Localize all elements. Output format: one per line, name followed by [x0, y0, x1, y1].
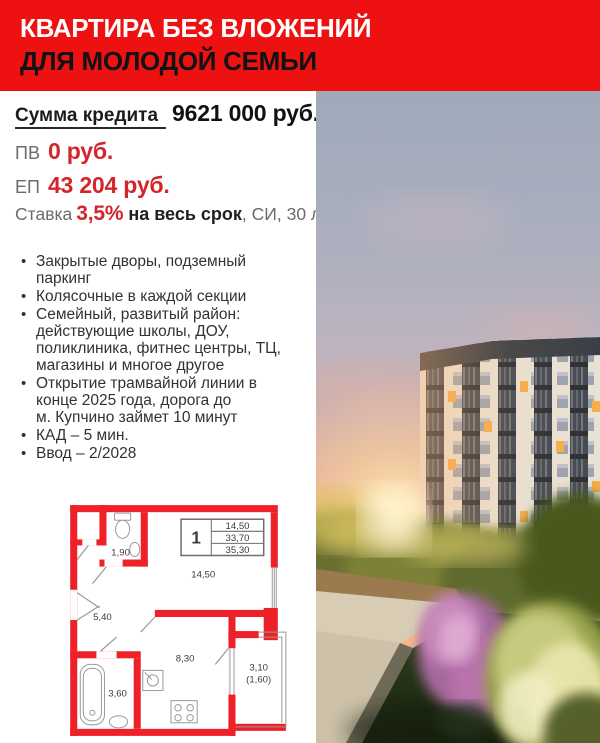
room-label-hall: 5,40	[93, 612, 112, 623]
flyer: КВАРТИРА БЕЗ ВЛОЖЕНИЙ ДЛЯ МОЛОДОЙ СЕМЬИ …	[0, 0, 600, 743]
banner-title-line2: ДЛЯ МОЛОДОЙ СЕМЬИ	[20, 45, 600, 78]
banner: КВАРТИРА БЕЗ ВЛОЖЕНИЙ ДЛЯ МОЛОДОЙ СЕМЬИ	[0, 0, 600, 91]
room-label-living: 14,50	[191, 570, 215, 581]
feature-item: Закрытые дворы, подземный паркинг	[36, 253, 330, 287]
downpayment-label: ПВ	[15, 143, 40, 163]
rate-term: на весь срок	[128, 204, 242, 224]
feature-list: Закрытые дворы, подземный паркинг Колясо…	[20, 253, 330, 463]
rate-value: 3,5%	[76, 202, 123, 225]
legend-rooms: 1	[191, 527, 201, 547]
banner-title-line1: КВАРТИРА БЕЗ ВЛОЖЕНИЙ	[20, 12, 600, 45]
room-label-balcony: 3,10	[249, 662, 268, 673]
sink-icon	[130, 542, 140, 556]
sun	[362, 487, 426, 551]
room-label-balcony-coef: (1,60)	[246, 674, 271, 685]
floorplan: 1 14,50 33,70 35,30 1,90 5,40 14,50 3,60…	[44, 497, 302, 743]
toilet-icon	[116, 520, 130, 538]
feature-item: Ввод – 2/2028	[36, 445, 330, 462]
room-label-kitchen: 8,30	[176, 653, 195, 664]
legend-area2: 33,70	[226, 533, 250, 544]
downpayment-value: 0 руб.	[48, 138, 113, 164]
feature-item: Семейный, развитый район: действующие шк…	[36, 306, 330, 374]
room-label-wc: 1,90	[111, 548, 130, 559]
rate-label: Ставка	[15, 204, 72, 224]
legend-area1: 14,50	[226, 521, 250, 532]
feature-item: КАД – 5 мин.	[36, 427, 330, 444]
credit-value: 9621 000 руб.	[172, 100, 319, 126]
rate-row: Ставка3,5%на весь срок, СИ, 30 лет	[15, 202, 338, 226]
floorplan-legend: 1 14,50 33,70 35,30	[181, 519, 264, 556]
building-photo	[316, 91, 600, 743]
monthly-payment-label: ЕП	[15, 177, 40, 197]
feature-item: Открытие трамвайной линии в конце 2025 г…	[36, 375, 330, 426]
feature-item: Колясочные в каждой секции	[36, 288, 330, 305]
sink-icon	[110, 716, 128, 728]
legend-area3: 35,30	[226, 545, 250, 556]
room-label-bath: 3,60	[108, 689, 127, 700]
monthly-payment-value: 43 204 руб.	[48, 172, 170, 198]
monthly-payment-row: ЕП43 204 руб.	[15, 172, 170, 199]
credit-label: Сумма кредита	[15, 105, 166, 129]
downpayment-row: ПВ0 руб.	[15, 138, 113, 165]
toilet-icon	[115, 513, 131, 520]
credit-row: Сумма кредита9621 000 руб.	[15, 100, 319, 127]
